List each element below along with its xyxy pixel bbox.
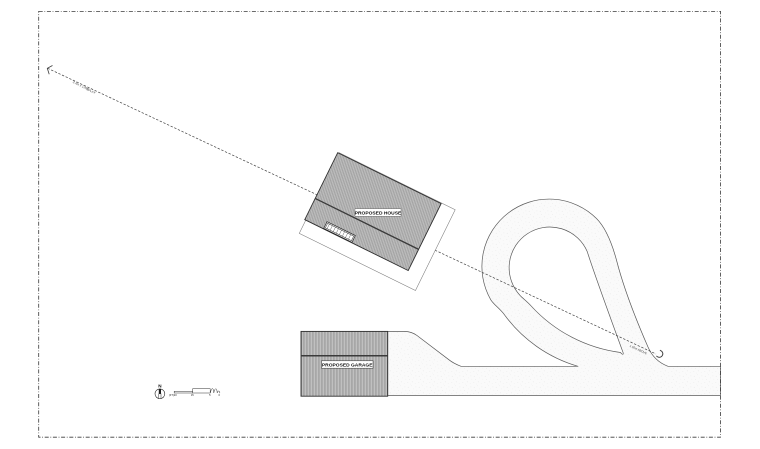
svg-text:PROPOSED HOUSE: PROPOSED HOUSE [355,211,402,217]
svg-text:(FT)20: (FT)20 [169,393,177,397]
svg-text:PROPOSED GARAGE: PROPOSED GARAGE [322,363,373,369]
